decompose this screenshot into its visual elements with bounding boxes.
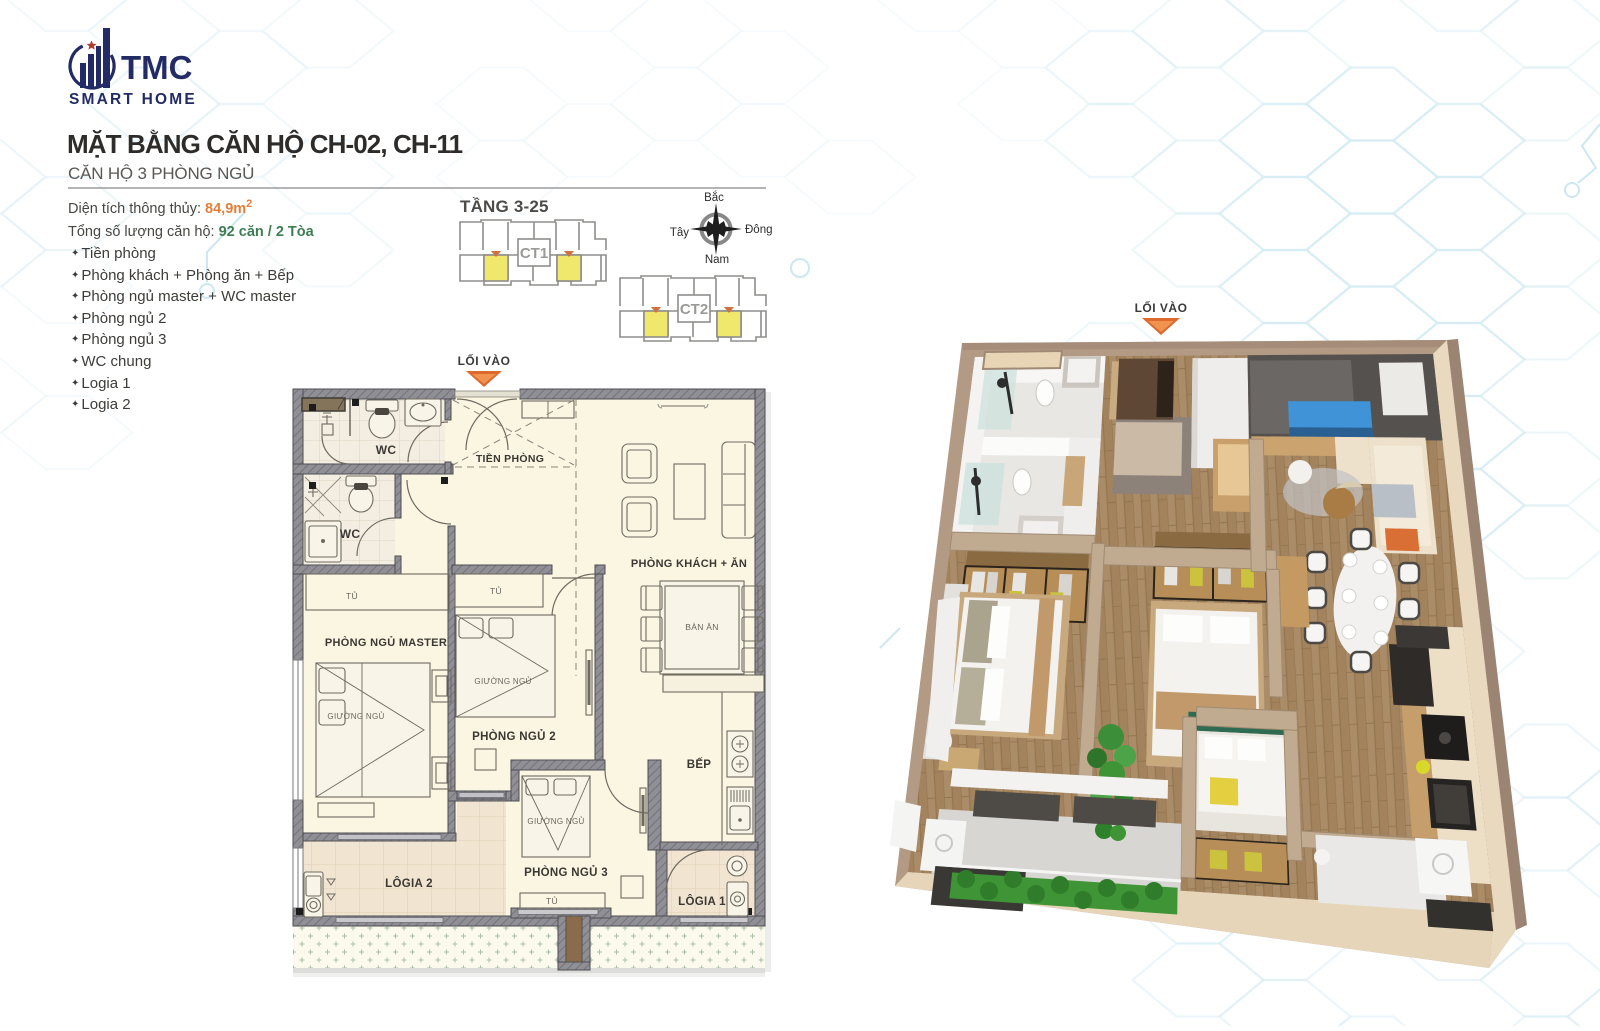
svg-text:Diện tích thông thủy: 84,9m2: Diện tích thông thủy: 84,9m2 [68, 198, 252, 217]
svg-text:✦Phòng ngủ master + WC master: ✦Phòng ngủ master + WC master [71, 288, 296, 305]
svg-text:CT1: CT1 [520, 245, 548, 262]
svg-text:TỦ: TỦ [546, 895, 558, 906]
svg-text:TẦNG 3-25: TẦNG 3-25 [460, 197, 549, 216]
svg-text:✦Phòng khách + Phòng ăn + Bếp: ✦Phòng khách + Phòng ăn + Bếp [71, 267, 294, 284]
svg-text:TỦ: TỦ [346, 590, 358, 601]
svg-text:LÔGIA 2: LÔGIA 2 [385, 877, 433, 890]
svg-text:✦Tiền phòng: ✦Tiền phòng [71, 245, 156, 262]
svg-text:PHÒNG NGỦ 3: PHÒNG NGỦ 3 [524, 866, 608, 879]
svg-text:GIƯỜNG NGỦ: GIƯỜNG NGỦ [327, 712, 384, 721]
svg-text:GIƯỜNG NGỦ: GIƯỜNG NGỦ [527, 817, 584, 826]
svg-text:CT2: CT2 [680, 301, 708, 318]
svg-text:WC: WC [376, 443, 397, 457]
svg-text:LÔGIA 1: LÔGIA 1 [678, 895, 726, 908]
svg-text:Bắc: Bắc [704, 191, 724, 204]
svg-text:BẾP: BẾP [687, 758, 712, 771]
svg-text:PHÒNG NGỦ MASTER: PHÒNG NGỦ MASTER [325, 636, 447, 649]
svg-text:✦WC chung: ✦WC chung [71, 353, 151, 370]
svg-text:TIỀN PHÒNG: TIỀN PHÒNG [476, 452, 544, 465]
svg-text:SMART HOME: SMART HOME [69, 91, 197, 108]
svg-text:CĂN HỘ 3 PHÒNG NGỦ: CĂN HỘ 3 PHÒNG NGỦ [68, 164, 254, 183]
svg-text:✦Phòng ngủ 3: ✦Phòng ngủ 3 [71, 331, 166, 348]
svg-text:PHÒNG KHÁCH + ĂN: PHÒNG KHÁCH + ĂN [631, 557, 747, 570]
svg-text:LỐI VÀO: LỐI VÀO [1135, 300, 1188, 315]
svg-text:✦Phòng ngủ 2: ✦Phòng ngủ 2 [71, 310, 166, 327]
svg-text:PHÒNG NGỦ 2: PHÒNG NGỦ 2 [472, 730, 556, 743]
svg-text:MẶT BẰNG CĂN HỘ CH-02, CH-11: MẶT BẰNG CĂN HỘ CH-02, CH-11 [67, 129, 463, 159]
svg-text:WC: WC [340, 527, 361, 541]
svg-text:Tổng số lượng căn hộ: 92 căn /: Tổng số lượng căn hộ: 92 căn / 2 Tòa [68, 224, 315, 240]
svg-text:Nam: Nam [705, 254, 729, 266]
svg-text:TỦ: TỦ [490, 585, 502, 596]
svg-text:LỐI VÀO: LỐI VÀO [458, 353, 511, 368]
svg-text:TMC: TMC [121, 49, 192, 86]
svg-text:GIƯỜNG NGỦ: GIƯỜNG NGỦ [474, 677, 531, 686]
svg-text:Đông: Đông [745, 224, 773, 236]
svg-text:Tây: Tây [670, 227, 689, 239]
svg-text:BÀN ĂN: BÀN ĂN [685, 622, 718, 632]
